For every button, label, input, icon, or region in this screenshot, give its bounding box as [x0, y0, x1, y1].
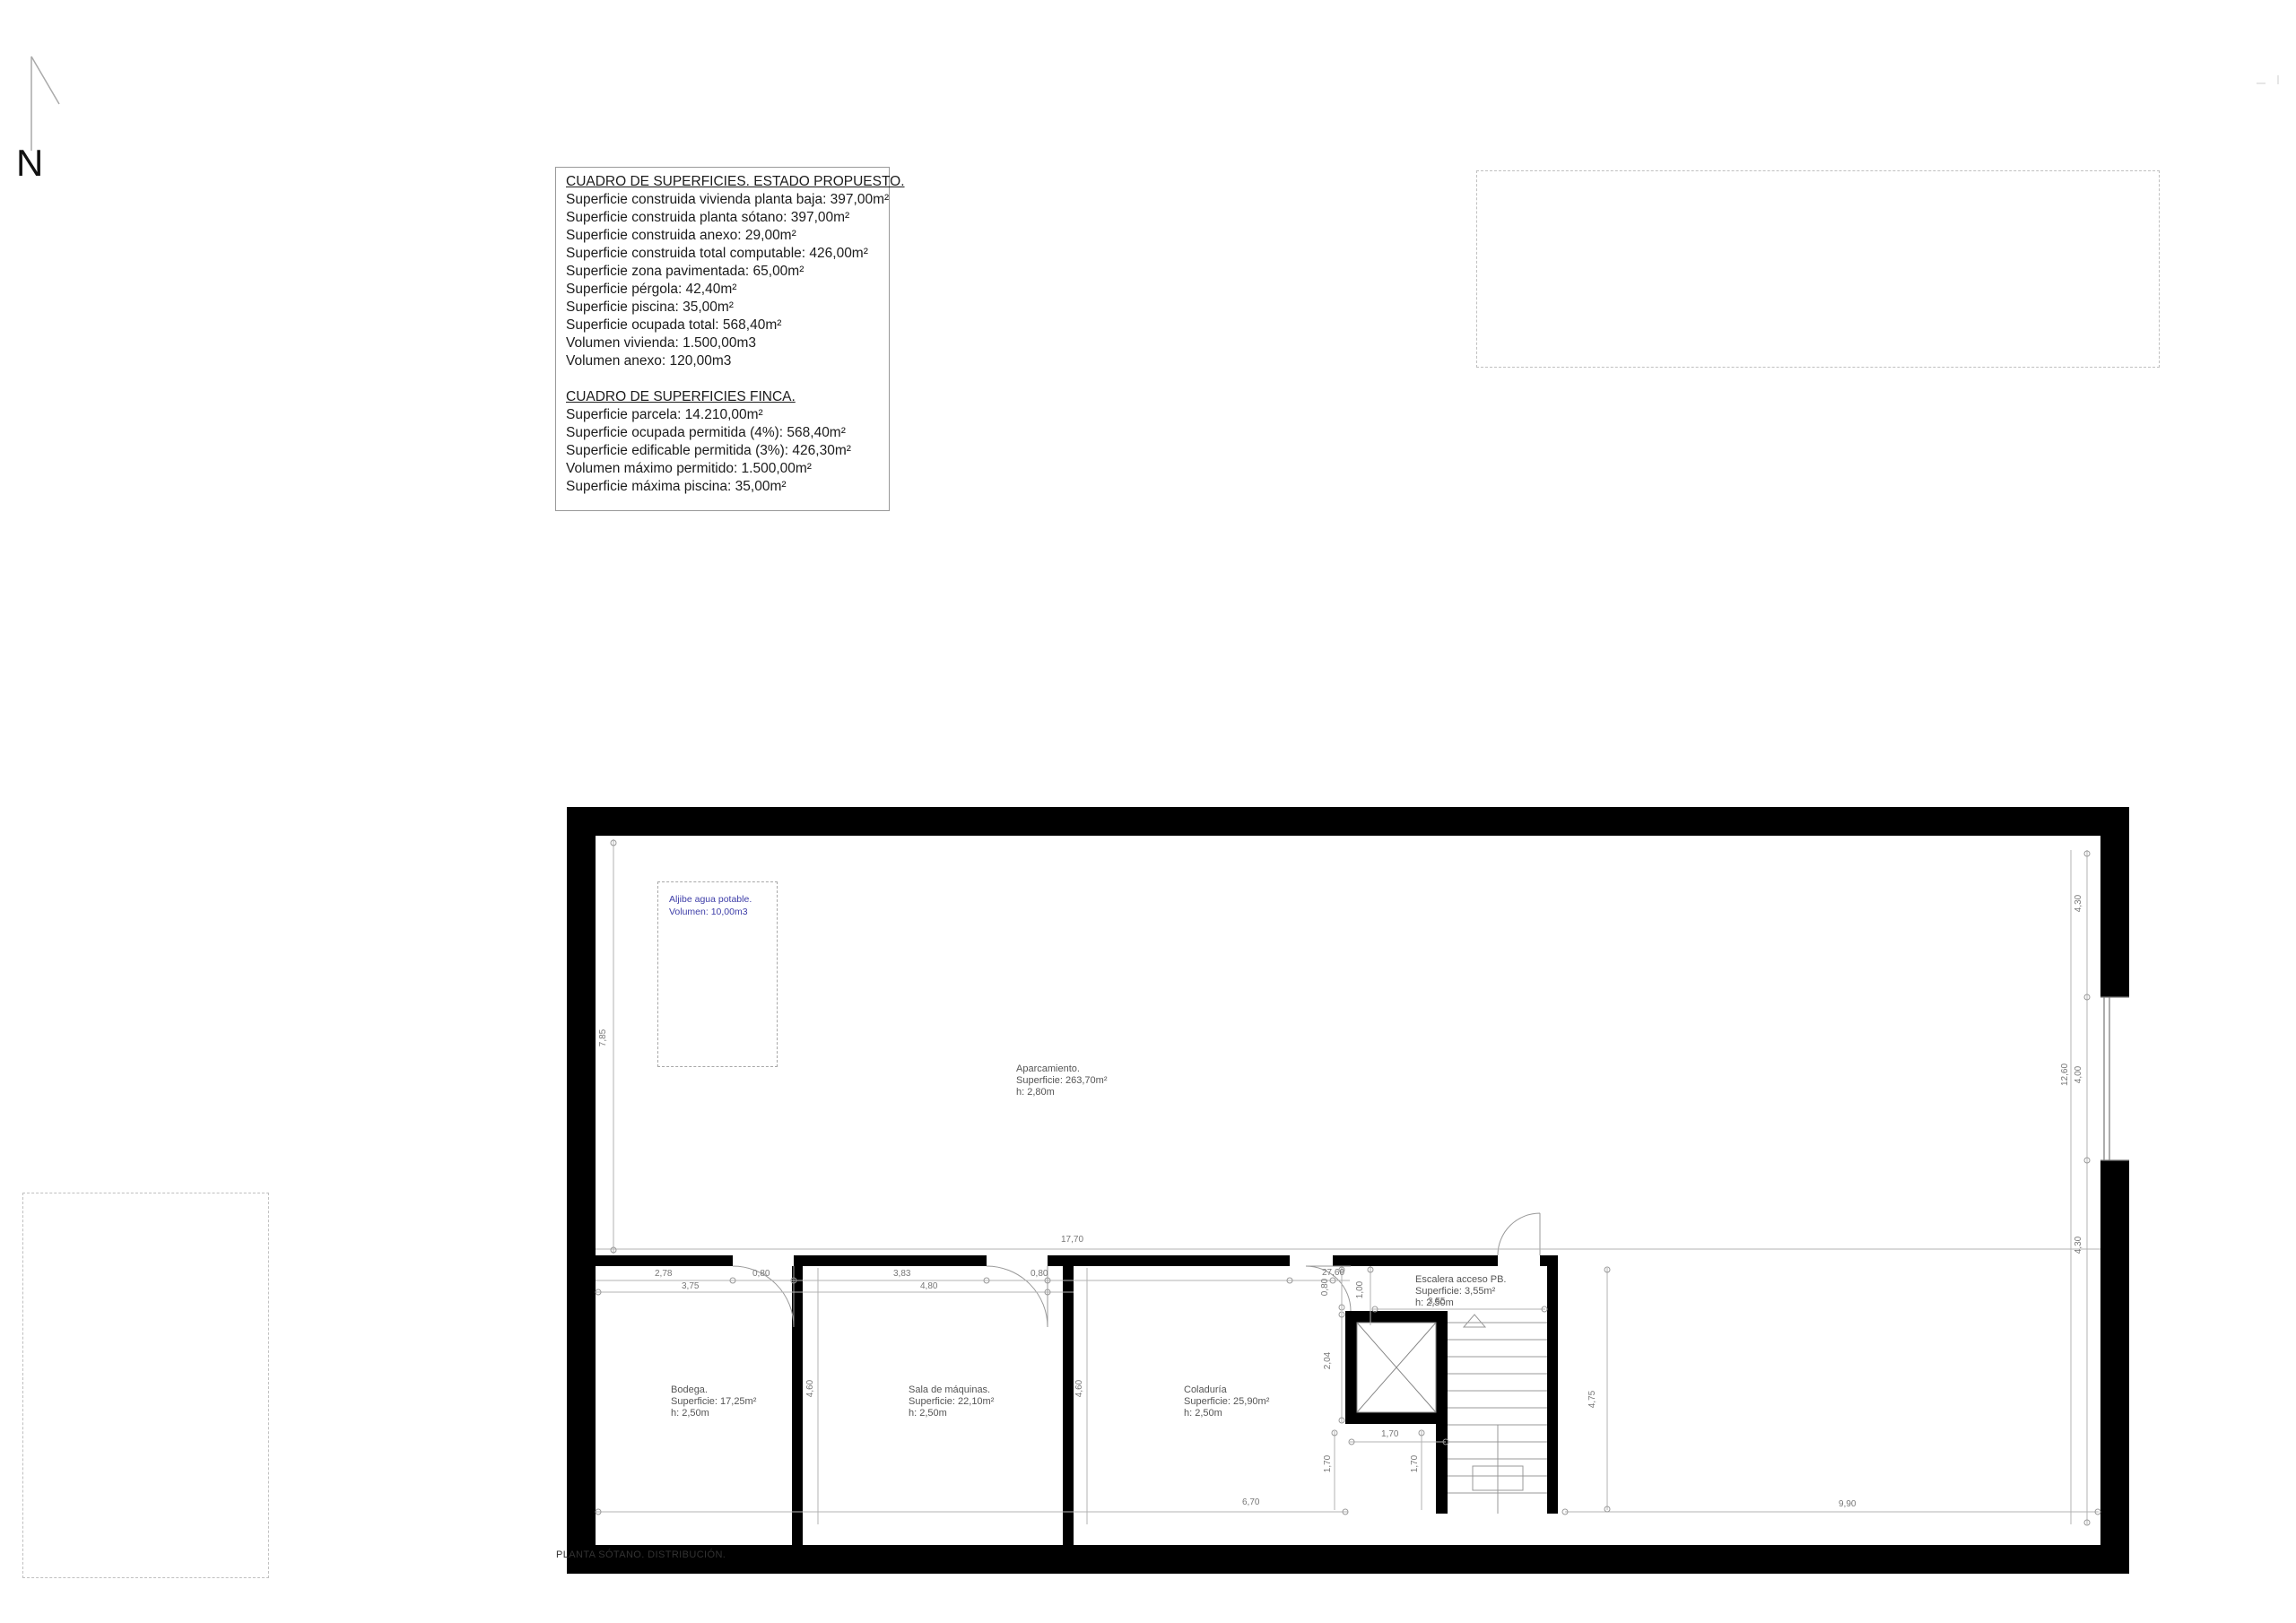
dimension-label: 7,85	[598, 1029, 608, 1046]
north-label: N	[16, 142, 43, 185]
surface-line: Superficie construida anexo: 29,00m²	[566, 227, 882, 245]
room-name: Sala de máquinas.	[909, 1384, 994, 1396]
dimension-label: 0,80	[752, 1269, 770, 1279]
walls	[567, 807, 2129, 1574]
dimension-label: 2,78	[655, 1269, 672, 1279]
page: N CUADRO DE SUPERFICIES. ESTADO PROPUEST…	[0, 0, 2296, 1623]
surface-line: Superficie construida total computable: …	[566, 245, 882, 263]
room-height: h: 2,50m	[909, 1408, 994, 1419]
stairs	[1448, 1315, 1547, 1514]
dimension-label: 3,55	[1428, 1297, 1445, 1306]
surface-line: Superficie ocupada total: 568,40m²	[566, 317, 882, 334]
surface-line: Volumen vivienda: 1.500,00m3	[566, 334, 882, 352]
dimension-label: 1,70	[1381, 1429, 1398, 1439]
room-label: Bodega. Superficie: 17,25m² h: 2,50m	[671, 1384, 756, 1419]
room-name: Escalera acceso PB.	[1415, 1274, 1507, 1286]
dimension-label: 4,00	[2074, 1066, 2083, 1083]
surface-line: Superficie zona pavimentada: 65,00m²	[566, 263, 882, 281]
window-glazing	[2100, 997, 2129, 1160]
room-label: Aparcamiento. Superficie: 263,70m² h: 2,…	[1016, 1063, 1108, 1098]
dimension-label: 4,75	[1587, 1391, 1597, 1408]
room-height: h: 2,50m	[1184, 1408, 1269, 1419]
surface-line: Superficie piscina: 35,00m²	[566, 299, 882, 317]
aljibe-note-box: Aljibe agua potable. Volumen: 10,00m3	[657, 881, 778, 1067]
dimension-label: 1,00	[1355, 1281, 1365, 1298]
dashed-outline-top-right	[1476, 170, 2160, 368]
surfaces-table: CUADRO DE SUPERFICIES. ESTADO PROPUESTO.…	[555, 167, 890, 511]
surface-line: Superficie máxima piscina: 35,00m²	[566, 478, 882, 496]
plan-title: PLANTA SÓTANO. DISTRIBUCIÓN.	[556, 1549, 726, 1560]
dimension-label: 6,70	[1242, 1497, 1259, 1507]
dimension-label: 4,30	[2074, 1237, 2083, 1254]
room-area: Superficie: 22,10m²	[909, 1396, 994, 1408]
dimension-label: 27,60	[1322, 1268, 1344, 1278]
dimension-label: 4,60	[805, 1380, 815, 1397]
dashed-outline-bottom-left	[22, 1193, 269, 1578]
dimension-label: 3,75	[682, 1281, 699, 1291]
stairs-up-arrow-icon	[1464, 1315, 1485, 1327]
dimension-label: 9,90	[1839, 1499, 1856, 1509]
dimension-label: 3,83	[893, 1269, 910, 1279]
elevator-shaft	[1357, 1323, 1436, 1412]
dimension-label: 1,70	[1410, 1455, 1420, 1472]
dimension-label: 12,60	[2060, 1063, 2070, 1086]
room-name: Aparcamiento.	[1016, 1063, 1108, 1075]
dimension-label: 4,80	[920, 1281, 937, 1291]
room-height: h: 2,80m	[1016, 1087, 1108, 1098]
surfaces-proposed-title: CUADRO DE SUPERFICIES. ESTADO PROPUESTO.	[566, 173, 882, 191]
dimension-label: 2,04	[1323, 1352, 1333, 1369]
room-label: Coladuría Superficie: 25,90m² h: 2,50m	[1184, 1384, 1269, 1419]
surface-line: Superficie parcela: 14.210,00m²	[566, 406, 882, 424]
door-swings	[733, 1213, 1540, 1327]
surface-line: Superficie construida vivienda planta ba…	[566, 191, 882, 209]
dimension-label: 4,60	[1074, 1380, 1084, 1397]
north-arrow-icon	[31, 56, 59, 151]
dimension-label: 4,30	[2074, 895, 2083, 912]
room-label: Sala de máquinas. Superficie: 22,10m² h:…	[909, 1384, 994, 1419]
room-name: Coladuría	[1184, 1384, 1269, 1396]
surface-line: Superficie edificable permitida (3%): 42…	[566, 442, 882, 460]
surface-line: Superficie pérgola: 42,40m²	[566, 281, 882, 299]
dimension-label: 0,80	[1320, 1279, 1330, 1296]
dimension-label: 0,80	[1031, 1269, 1048, 1279]
dimension-label: 17,70	[1061, 1235, 1083, 1245]
surfaces-proposed-lines: Superficie construida vivienda planta ba…	[566, 191, 882, 370]
surface-line: Superficie ocupada permitida (4%): 568,4…	[566, 424, 882, 442]
room-area: Superficie: 17,25m²	[671, 1396, 756, 1408]
surface-line: Superficie construida planta sótano: 397…	[566, 209, 882, 227]
room-name: Bodega.	[671, 1384, 756, 1396]
surface-line: Volumen anexo: 120,00m3	[566, 352, 882, 370]
aljibe-line1: Aljibe agua potable.	[669, 893, 777, 906]
surface-line: Volumen máximo permitido: 1.500,00m²	[566, 460, 882, 478]
corner-marks	[2257, 75, 2278, 84]
aljibe-line2: Volumen: 10,00m3	[669, 906, 777, 918]
room-height: h: 2,50m	[671, 1408, 756, 1419]
dimension-label: 1,70	[1323, 1455, 1333, 1472]
room-area: Superficie: 25,90m²	[1184, 1396, 1269, 1408]
room-area: Superficie: 263,70m²	[1016, 1075, 1108, 1087]
surfaces-finca-title: CUADRO DE SUPERFICIES FINCA.	[566, 388, 882, 406]
surfaces-finca-lines: Superficie parcela: 14.210,00m²Superfici…	[566, 406, 882, 496]
